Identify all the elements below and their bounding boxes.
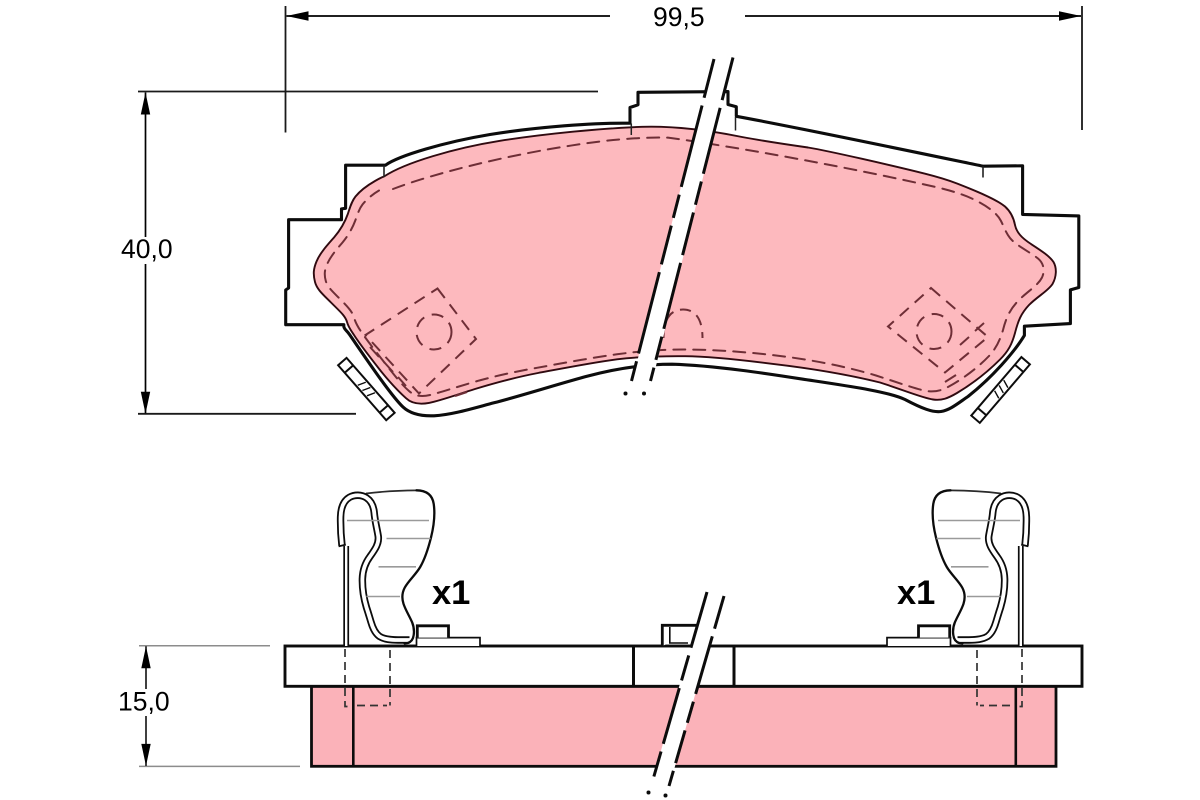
svg-text:40,0: 40,0 xyxy=(121,234,173,264)
svg-text:x1: x1 xyxy=(432,574,470,612)
svg-text:x1: x1 xyxy=(897,574,935,612)
svg-text:99,5: 99,5 xyxy=(653,2,705,32)
svg-text:15,0: 15,0 xyxy=(118,687,170,717)
